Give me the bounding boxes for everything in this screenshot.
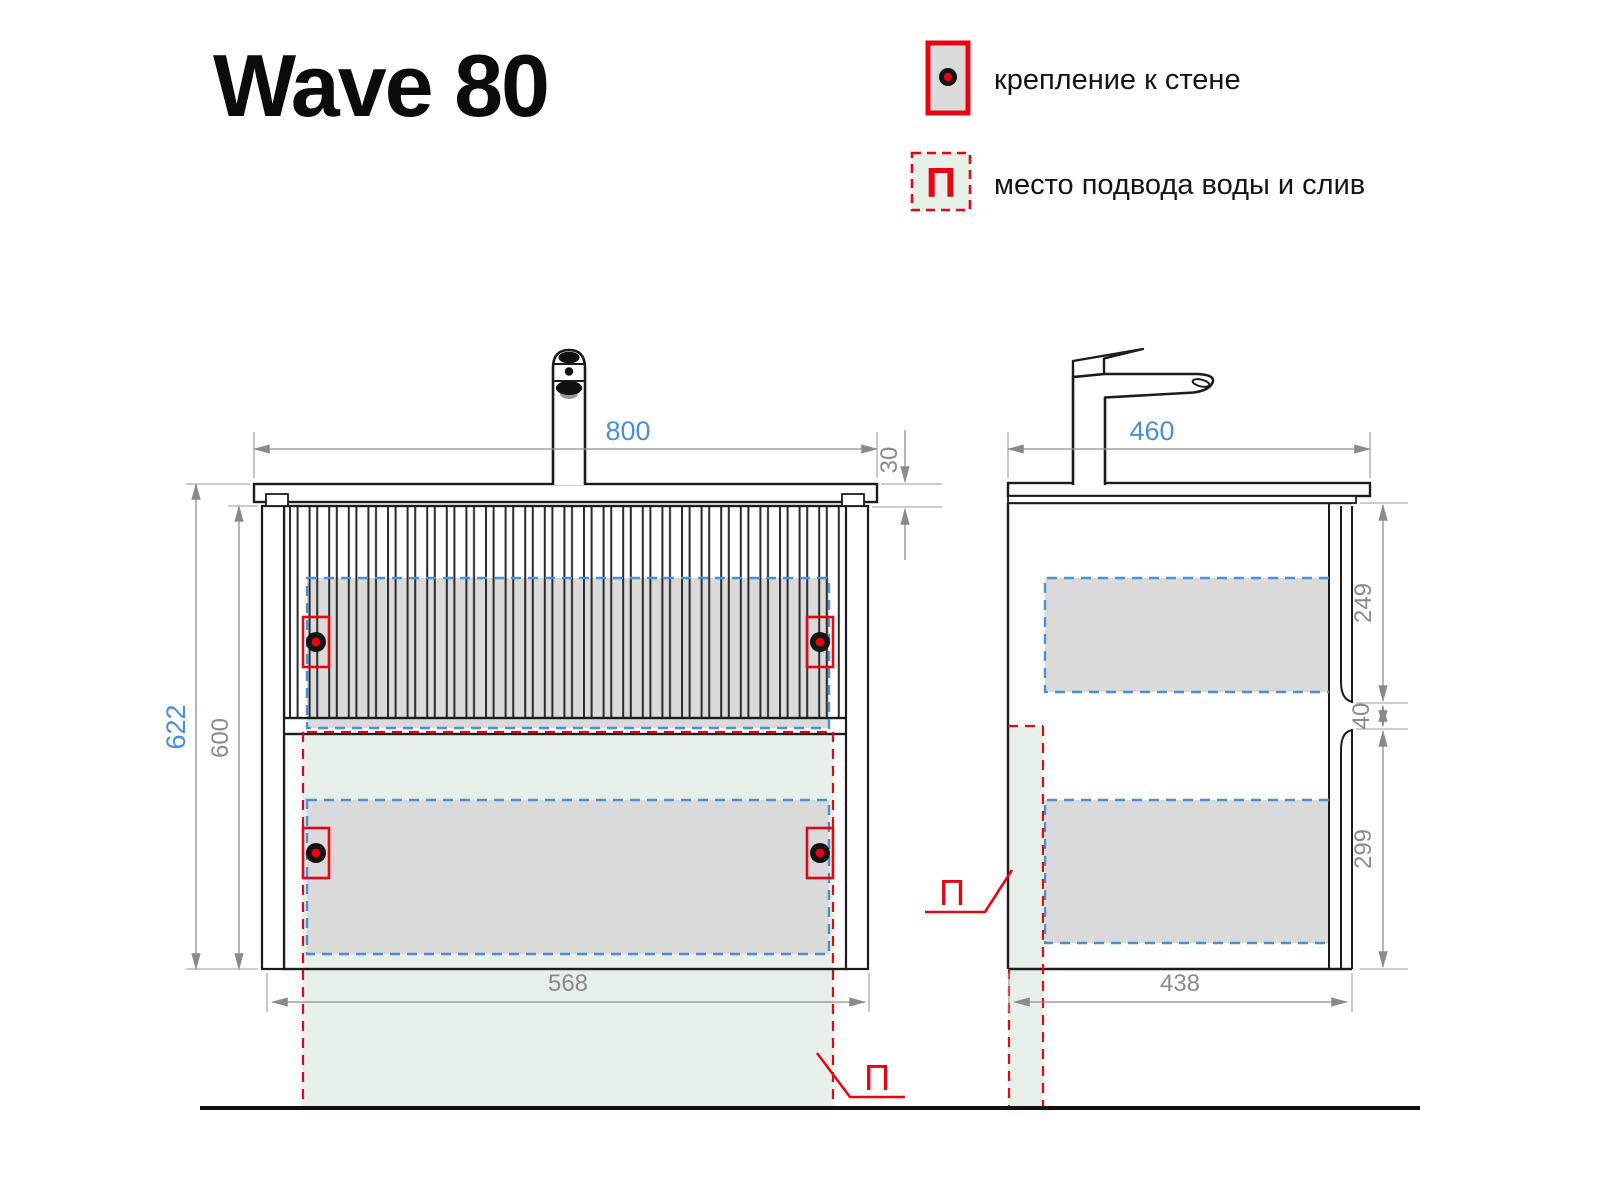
dim-drawer-gap: 40: [1348, 703, 1408, 730]
upper-drawer-slats: [287, 506, 844, 718]
side-view: 460 249 40 299 438 П: [925, 349, 1408, 1108]
svg-text:568: 568: [548, 970, 588, 997]
countertop-side-lip: [1008, 496, 1356, 503]
countertop-side: [1008, 483, 1370, 496]
drawing-sheet: Wave 80 крепление к стене П место подвод…: [0, 0, 1600, 1200]
hanging-rail-left: [266, 494, 288, 506]
side-upper-service-area-fill: [1045, 578, 1329, 692]
hanging-rail-right: [842, 494, 864, 506]
legend-item-wall-mount: крепление к стене: [928, 43, 1241, 113]
front-lower-service-area-fill: [307, 800, 829, 954]
dim-countertop-thickness: 30: [872, 430, 942, 560]
countertop-front: [254, 484, 877, 502]
legend-wall-mount-label: крепление к стене: [994, 64, 1241, 96]
side-lower-service-area-fill: [1045, 800, 1329, 943]
side-water-zone-callout: П: [925, 870, 1012, 913]
cabinet-left-panel: [262, 506, 284, 969]
svg-text:30: 30: [876, 447, 903, 474]
faucet-front: [553, 350, 585, 485]
dim-depth: 460: [1008, 416, 1370, 478]
dim-cabinet-height: 600: [207, 506, 258, 969]
svg-text:800: 800: [605, 416, 650, 446]
legend-water-zone-label: место подвода воды и слив: [994, 169, 1365, 201]
dim-cabinet-depth: 438: [1009, 970, 1352, 1012]
water-zone-symbol: П: [926, 159, 956, 206]
cabinet-right-panel: [846, 506, 868, 969]
svg-text:П: П: [939, 872, 965, 913]
svg-text:438: 438: [1160, 970, 1200, 997]
svg-text:299: 299: [1350, 829, 1377, 869]
front-view: 800 30 622 600 568: [161, 350, 942, 1108]
svg-text:622: 622: [161, 704, 191, 749]
legend: крепление к стене П место подвода воды и…: [912, 43, 1365, 210]
legend-item-water-zone: П место подвода воды и слив: [912, 153, 1365, 210]
page-title: Wave 80: [213, 36, 548, 135]
svg-text:600: 600: [207, 718, 234, 758]
svg-text:40: 40: [1348, 703, 1375, 730]
svg-text:460: 460: [1129, 416, 1174, 446]
wall-mount-dot-inner: [944, 73, 952, 81]
dim-lower-drawer-height: 299: [1350, 731, 1408, 969]
svg-text:249: 249: [1350, 583, 1377, 623]
dim-upper-drawer-height: 249: [1350, 503, 1408, 703]
technical-drawing: Wave 80 крепление к стене П место подвод…: [0, 0, 1600, 1200]
svg-text:П: П: [864, 1057, 890, 1098]
side-water-zone-fill: [1008, 726, 1043, 1108]
